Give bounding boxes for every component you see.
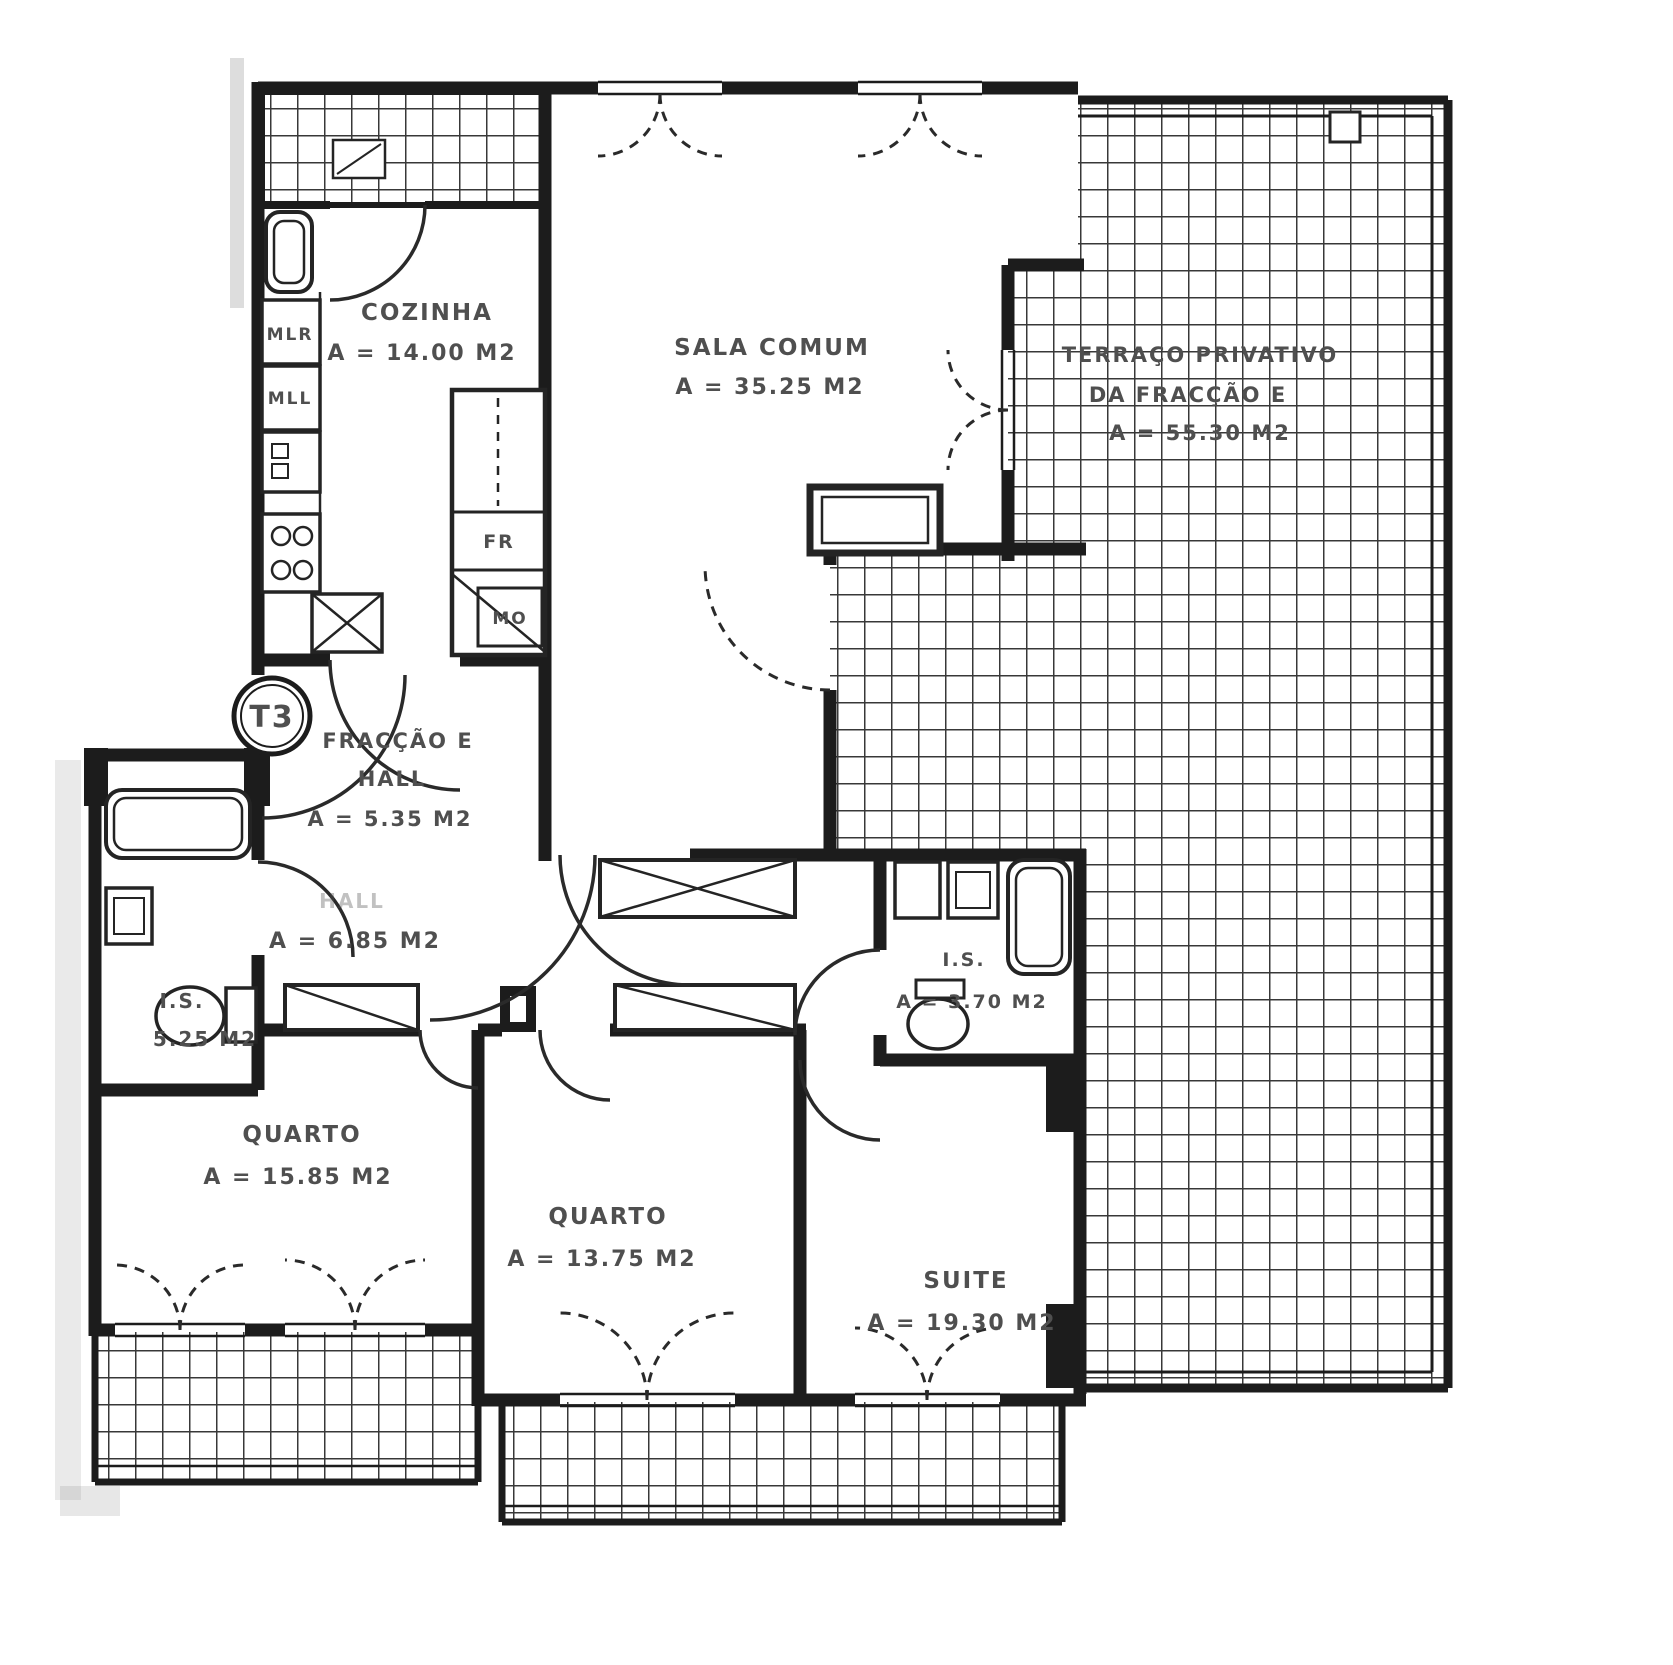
label-sala: SALA COMUM — [674, 335, 870, 361]
label-is-suite: I.S. — [942, 949, 985, 971]
floor-plan: T3 COZINHA A = 14.00 M2 SALA COMUM A = 3… — [0, 0, 1673, 1665]
label-mo: MO — [492, 609, 527, 629]
bathtub — [106, 790, 250, 858]
label-suite-area: A = 19.30 M2 — [867, 1311, 1056, 1336]
terrace-corner-box — [1330, 112, 1360, 142]
label-is-esquerda-area: 5.25 M2 — [153, 1027, 257, 1051]
balcony-bottom-left-tiles — [97, 1332, 476, 1480]
unit-badge: T3 — [234, 678, 310, 754]
label-quarto1: QUARTO — [242, 1122, 361, 1148]
label-cozinha: COZINHA — [361, 300, 493, 326]
sink — [106, 888, 152, 944]
label-hall-entrada-area: A = 5.35 M2 — [307, 807, 472, 831]
label-mlr: MLR — [267, 325, 314, 345]
label-cozinha-area: A = 14.00 M2 — [327, 341, 516, 366]
balcony-top-left-tiles — [262, 92, 542, 205]
label-quarto2-area: A = 13.75 M2 — [507, 1247, 696, 1272]
unit-badge-label: T3 — [249, 700, 294, 735]
appliance-box — [262, 432, 320, 492]
bidet-box — [895, 862, 940, 918]
label-hall-entrada-2: HALL — [358, 767, 427, 791]
label-hall-interior-area: A = 6.85 M2 — [269, 929, 441, 954]
stove — [262, 514, 320, 592]
label-terraco-area: A = 55.30 M2 — [1109, 421, 1291, 445]
label-quarto1-area: A = 15.85 M2 — [203, 1165, 392, 1190]
label-mll: MLL — [268, 389, 313, 409]
label-terraco-2: DA FRACÇÃO E — [1089, 382, 1287, 407]
label-terraco-1: TERRAÇO PRIVATIVO — [1062, 343, 1339, 367]
terrace-planter — [810, 487, 940, 553]
label-quarto2: QUARTO — [548, 1204, 667, 1230]
label-hall-interior: HALL — [319, 889, 385, 913]
label-sala-area: A = 35.25 M2 — [675, 375, 864, 400]
label-hall-entrada-1: FRACÇÃO E — [322, 728, 473, 753]
label-suite: SUITE — [923, 1268, 1008, 1294]
balcony-bottom-middle-tiles — [502, 1402, 1060, 1520]
label-fr: FR — [483, 531, 515, 553]
label-is-esquerda: I.S. — [159, 989, 204, 1013]
label-is-suite-area: A = 3.70 M2 — [896, 991, 1047, 1013]
